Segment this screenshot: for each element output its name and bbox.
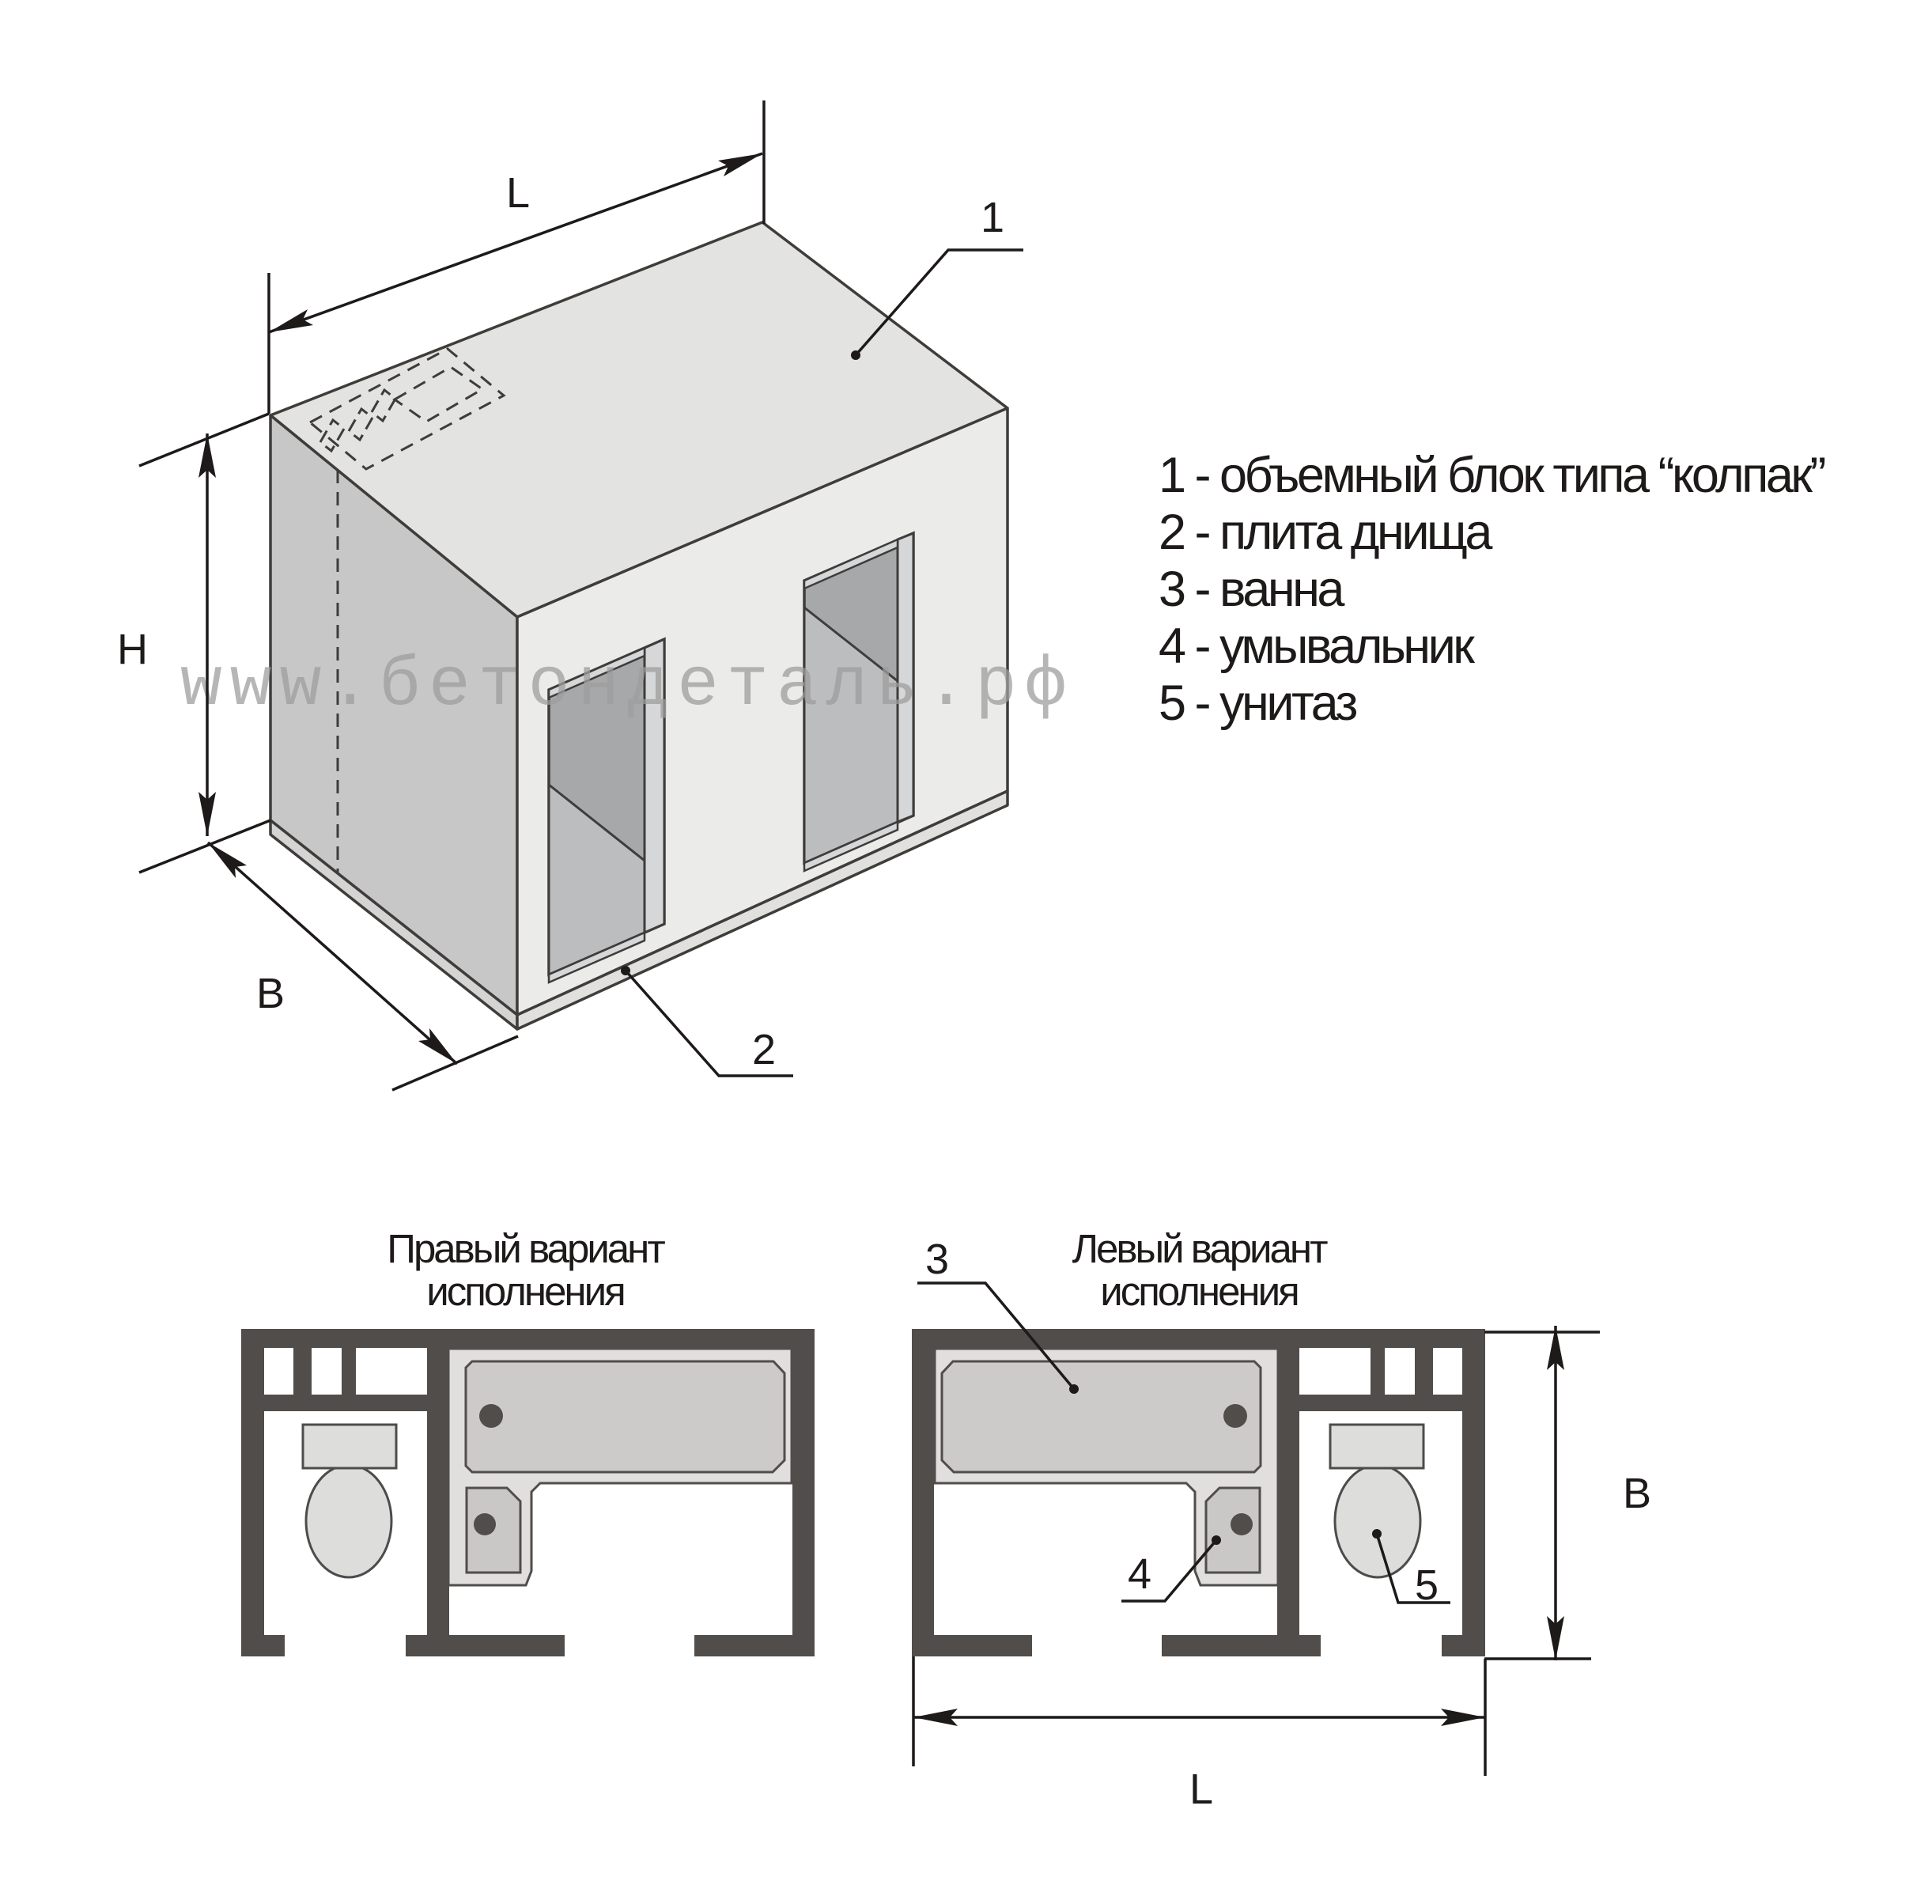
svg-text:Правый вариант: Правый вариант [387,1226,665,1271]
svg-text:1 - объемный блок типа “колпак: 1 - объемный блок типа “колпак” [1159,448,1824,503]
svg-text:3: 3 [925,1236,949,1283]
svg-text:4 - умывальник: 4 - умывальник [1159,619,1475,674]
svg-text:L: L [1189,1766,1213,1813]
svg-text:L: L [506,169,530,217]
svg-text:B: B [256,970,285,1017]
svg-text:Левый вариант: Левый вариант [1072,1226,1329,1271]
svg-text:исполнения: исполнения [426,1269,624,1314]
svg-text:2 - плита днища: 2 - плита днища [1159,505,1493,560]
svg-text:H: H [117,626,148,673]
svg-text:5: 5 [1415,1561,1439,1609]
svg-text:исполнения: исполнения [1100,1269,1298,1314]
svg-text:5 - унитаз: 5 - унитаз [1159,676,1356,731]
svg-text:1: 1 [981,194,1004,241]
svg-text:2: 2 [752,1026,776,1073]
svg-text:www.бетондеталь.рф: www.бетондеталь.рф [180,647,1075,725]
svg-text:4: 4 [1128,1550,1151,1598]
svg-text:B: B [1623,1470,1651,1517]
svg-text:3 - ванна: 3 - ванна [1159,562,1345,617]
